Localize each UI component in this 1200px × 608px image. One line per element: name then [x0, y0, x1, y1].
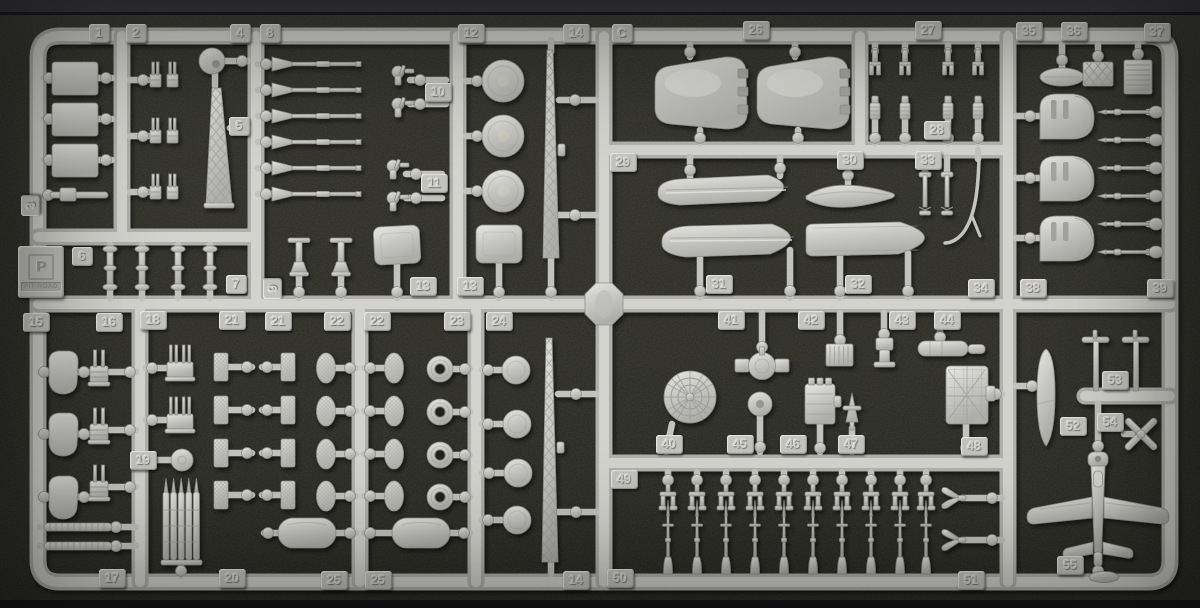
brand-monogram: P [28, 254, 54, 280]
part-4-pulley-disc [199, 48, 225, 74]
part-38-turret-domes [1040, 94, 1094, 261]
part-42-ribbed-box [826, 344, 853, 366]
part-21-textured-plates-left [214, 353, 228, 509]
part-2-twin-guns [150, 62, 178, 199]
part-30-lens-float [806, 185, 895, 207]
part-55-seaplane [1027, 452, 1169, 583]
sprue-photo: 123485679101112131314C262728293033313234… [0, 0, 1200, 608]
part-22-textured-ovals-b [385, 353, 404, 511]
part-44-cylinder [918, 341, 985, 356]
part-37-striped-hatch [1124, 60, 1152, 94]
part-43-cylinder-stack [874, 338, 895, 367]
part-17-ribbed-rods [44, 523, 112, 550]
brand-name: PIT-ROAD [21, 282, 61, 291]
part-15-shields [49, 351, 78, 519]
part-19-disc [171, 449, 193, 471]
part-12-discs [482, 60, 524, 212]
part-32-barge-hull [806, 222, 925, 256]
sprue-frame-and-parts [0, 0, 1200, 608]
part-35-oval-dome [1040, 68, 1084, 86]
part-23-rings [427, 356, 453, 510]
part-53-float-struts [1082, 330, 1149, 391]
part-20-shell-rack [161, 478, 202, 565]
part-48-structure-box [946, 366, 995, 424]
part-51-claws [942, 487, 966, 550]
part-29-boat-hull [658, 175, 788, 205]
part-6-pillars [103, 246, 217, 290]
part-14-lattice-mast-bottom [542, 338, 564, 562]
photo-top-edge [0, 0, 1200, 15]
part-9-pedestals [288, 238, 352, 276]
part-52-float [1037, 349, 1055, 446]
part-10-11-aa-guns [387, 65, 414, 211]
part-41-gun-mount [735, 347, 789, 380]
photo-bottom-edge [0, 600, 1200, 608]
part-16-twin-gun-mounts [88, 350, 110, 501]
brand-logo-plate: P PIT-ROAD [18, 246, 64, 298]
part-1-panels [52, 62, 98, 177]
part-5-mast-tower [204, 88, 234, 208]
part-3-rod [50, 188, 108, 201]
part-31-boat-hull [662, 224, 794, 257]
part-26-turrets [655, 57, 850, 129]
part-45-disc [748, 392, 772, 416]
part-21-textured-plates-mid [281, 353, 295, 509]
part-50-mast-row [663, 500, 932, 574]
part-27-clevis-pins [870, 47, 984, 75]
part-18-quad-gun-mounts [165, 345, 195, 433]
part-28-bolts [870, 96, 983, 119]
part-40-radar-dish [664, 371, 716, 423]
part-49-davit-row [659, 475, 935, 511]
part-24-discs [502, 356, 532, 534]
part-22-textured-ovals-a [317, 353, 336, 511]
part-47-fin [843, 393, 861, 430]
part-14-lattice-mast-top [543, 50, 565, 258]
part-39-rods [1098, 106, 1163, 258]
part-46-superstructure-box [805, 378, 841, 424]
part-8-gun-barrels [272, 57, 361, 201]
part-36-hatch-grille [1083, 62, 1113, 86]
part-13-plates [373, 225, 522, 265]
part-33-davits [919, 172, 953, 215]
